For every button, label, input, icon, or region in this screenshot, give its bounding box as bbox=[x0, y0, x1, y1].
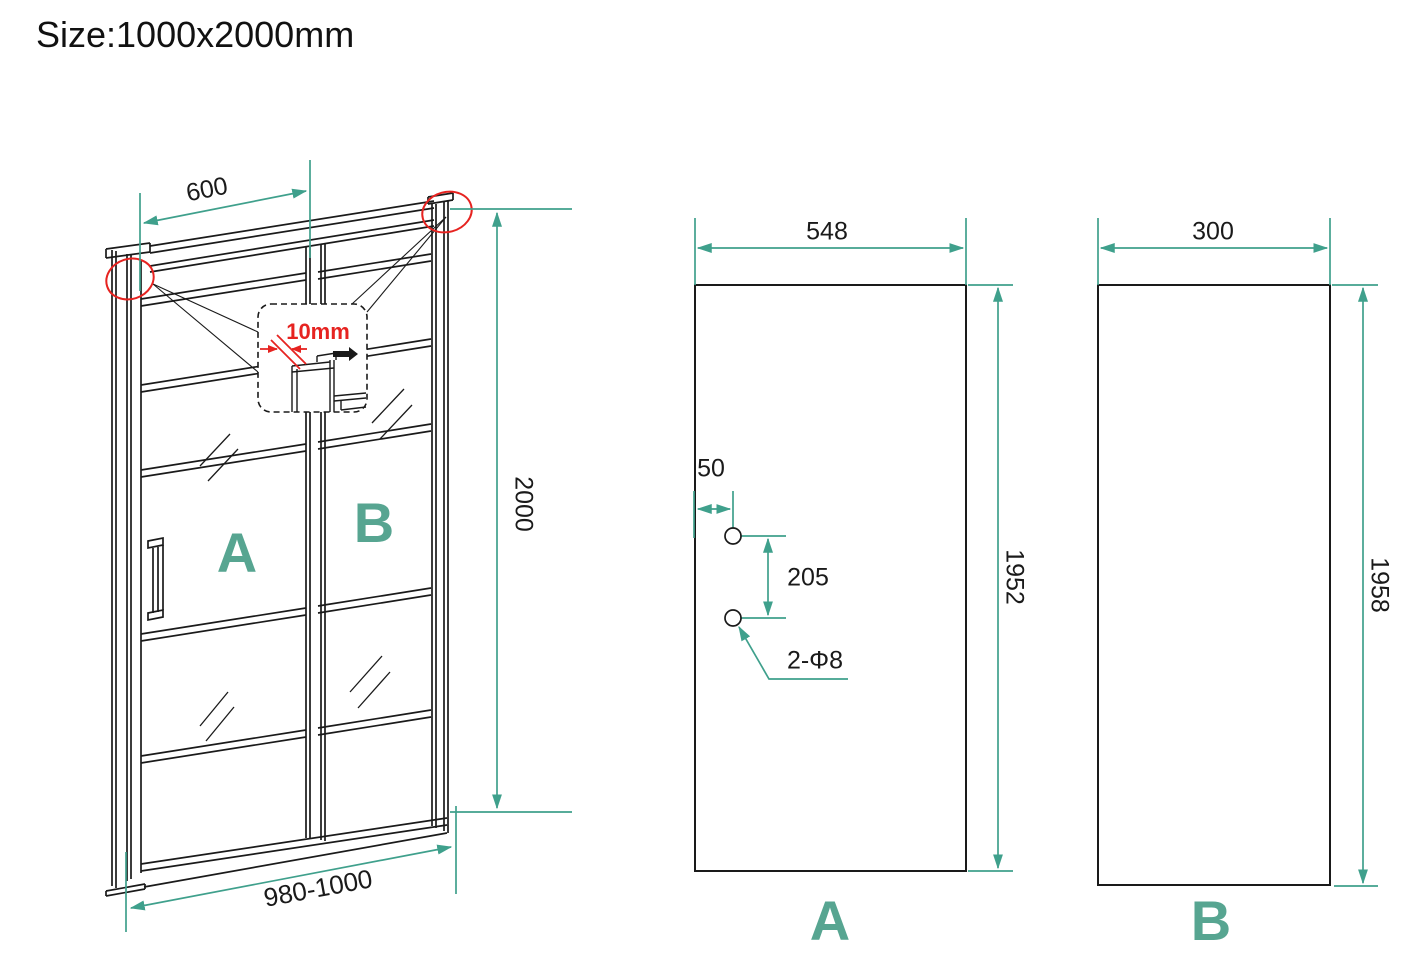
front-view-drawing bbox=[101, 160, 572, 932]
mounting-holes bbox=[725, 528, 741, 626]
technical-linework bbox=[0, 0, 1414, 967]
panel-b-view-drawing bbox=[1098, 218, 1378, 886]
dim-label-panel-a-height: 1952 bbox=[1002, 549, 1027, 605]
panel-b-view-letter: B bbox=[1191, 893, 1231, 949]
wall-profile-left bbox=[106, 243, 150, 896]
sheet-title: Size:1000x2000mm bbox=[36, 14, 354, 56]
panel-b-dimensions bbox=[1098, 218, 1378, 886]
panel-a-outline bbox=[695, 285, 966, 871]
dim-label-overall-height: 2000 bbox=[511, 476, 536, 532]
panel-a-view-drawing bbox=[694, 218, 1013, 871]
front-view-dimensions bbox=[126, 160, 572, 932]
dim-label-panel-b-height: 1958 bbox=[1367, 557, 1392, 613]
door-panel-b-letter: B bbox=[354, 495, 394, 551]
dim-label-hole-offset: 50 bbox=[697, 457, 725, 482]
door-handle bbox=[148, 538, 163, 620]
top-rail bbox=[150, 201, 434, 272]
dim-label-panel-a-width: 548 bbox=[806, 220, 848, 245]
right-frame-column bbox=[428, 193, 453, 833]
dim-label-hole-spec: 2-Φ8 bbox=[787, 649, 843, 674]
mounting-hole-bottom bbox=[725, 610, 741, 626]
mounting-hole-top bbox=[725, 528, 741, 544]
panel-a-view-letter: A bbox=[810, 893, 850, 949]
drawing-sheet: Size:1000x2000mm 600 2000 980-1000 10mm … bbox=[0, 0, 1414, 967]
door-panel-a-letter: A bbox=[217, 525, 257, 581]
dim-label-hole-spacing: 205 bbox=[787, 566, 829, 591]
dim-label-gap: 10mm bbox=[286, 321, 350, 343]
panel-b-outline bbox=[1098, 285, 1330, 885]
dim-label-panel-b-width: 300 bbox=[1192, 220, 1234, 245]
glass-reflection-marks bbox=[200, 434, 238, 741]
